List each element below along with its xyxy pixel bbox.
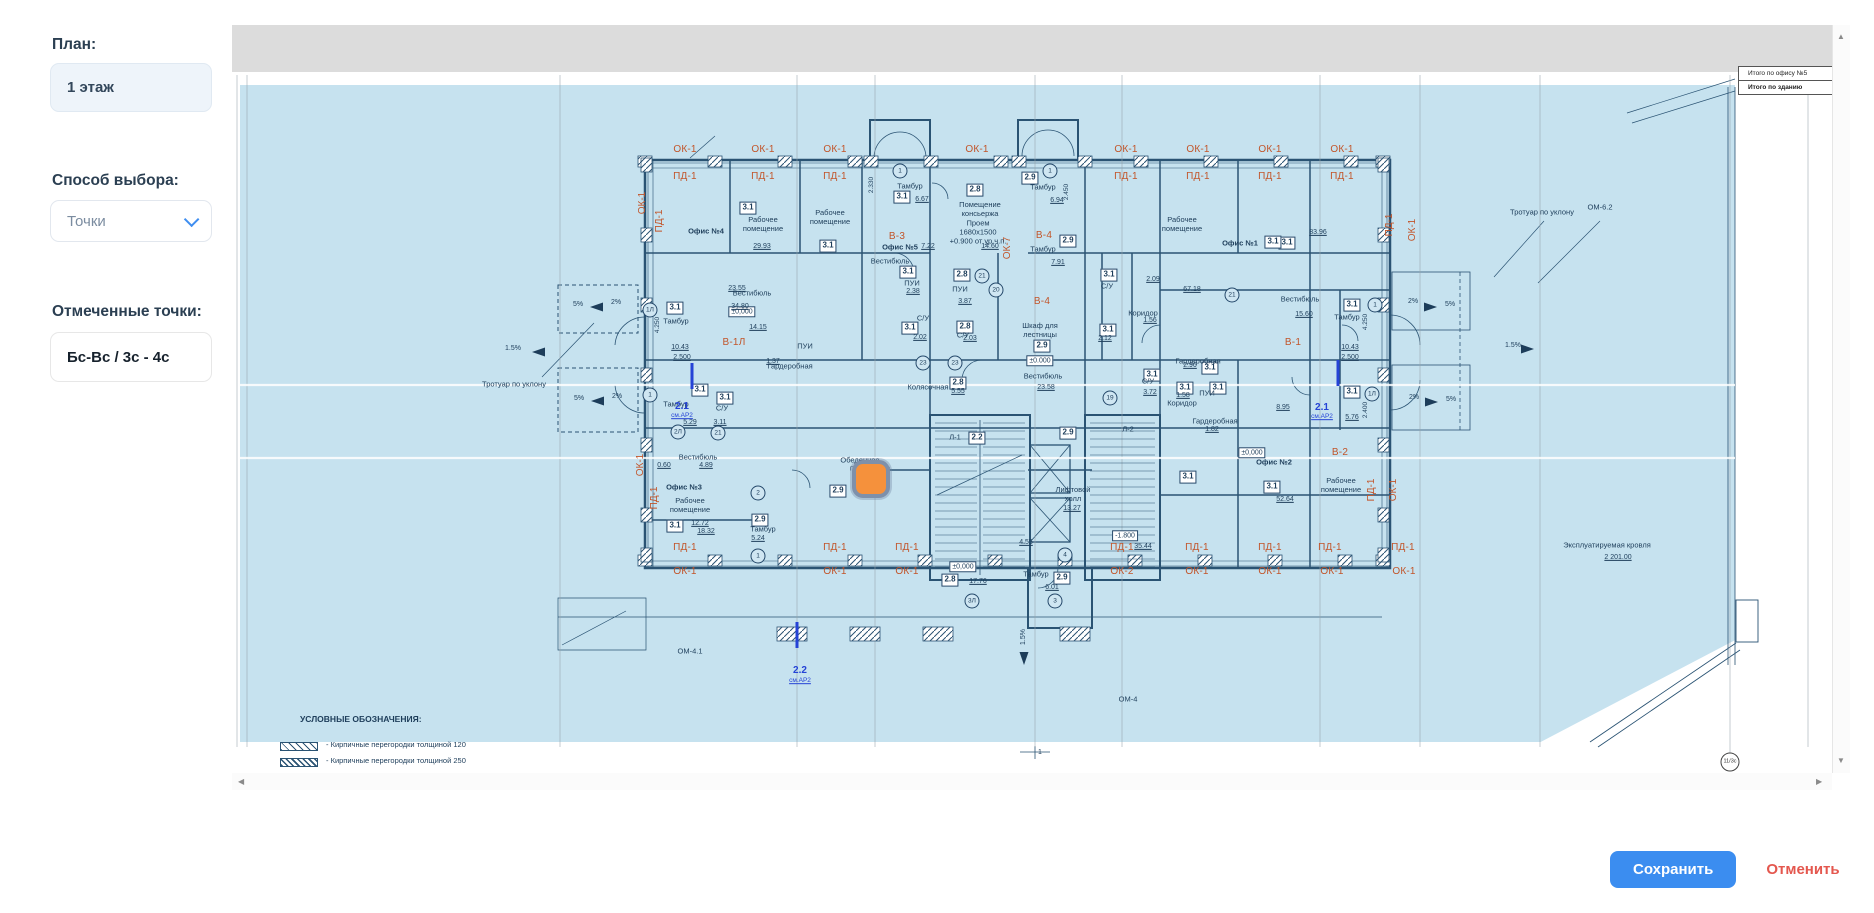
plan-label: 23	[948, 356, 963, 371]
plan-label: 3.1	[901, 322, 918, 335]
plan-label: 1.5%	[1020, 629, 1028, 645]
plan-label: 3.1	[1100, 269, 1117, 282]
blue-tick-mark	[691, 363, 694, 389]
plan-label: 23	[916, 356, 931, 371]
plan-label: 10.43	[671, 344, 689, 352]
plan-label: 13.27	[1063, 505, 1081, 513]
plan-label: В-1Л	[723, 337, 746, 349]
plan-label: ±0,000	[1238, 447, 1265, 458]
plan-label: см.АР2	[789, 677, 811, 685]
plan-label: Помещение консьержа	[959, 201, 1001, 219]
plan-label: 7.91	[1051, 259, 1065, 267]
plan-label: 6.67	[915, 196, 929, 204]
vertical-scrollbar[interactable]: ▲ ▼	[1832, 25, 1850, 773]
plan-label: Колясочная	[908, 384, 949, 393]
plan-label: 83.96	[1309, 229, 1327, 237]
plan-label: Офис №2	[1256, 459, 1292, 468]
plan-label: 29.93	[753, 243, 771, 251]
legend-item: - Кирпичные перегородки толщиной 250	[326, 756, 466, 765]
plan-label: 3Л	[965, 594, 980, 609]
plan-label: ПУИ	[904, 280, 920, 289]
plan-label: 2.96	[1183, 362, 1197, 370]
plan-label: Тротуар по уклону	[482, 381, 546, 390]
action-bar: Сохранить Отменить	[1610, 851, 1840, 888]
plan-label: 3.1	[1176, 382, 1193, 395]
plan-label: 5%	[1445, 301, 1455, 309]
plan-label: 2%	[1409, 394, 1419, 402]
plan-label: Шкаф для лестницы	[1022, 322, 1058, 340]
plan-label: 2.9	[751, 514, 768, 527]
legend-hatch-swatch-250	[280, 758, 318, 767]
plan-label: 2.8	[966, 184, 983, 197]
scroll-up-icon[interactable]: ▲	[1837, 33, 1845, 41]
plan-select-value: 1 этаж	[67, 79, 114, 96]
plan-label: 3.1	[666, 302, 683, 315]
plan-label: ОМ-6.2	[1587, 204, 1612, 213]
plan-label: 3.1	[1264, 236, 1281, 249]
plan-label: -1.800	[1112, 530, 1138, 541]
plan-label: ПД-1	[1186, 171, 1210, 183]
plan-label: ПД-1	[751, 171, 775, 183]
plan-label: 2Л	[671, 425, 686, 440]
scroll-right-icon[interactable]: ▶	[1816, 778, 1822, 786]
plan-label: ПД-1	[673, 542, 697, 554]
plan-label: Тамбур	[897, 183, 922, 192]
plan-label: 3.1	[899, 266, 916, 279]
plan-label: ОК-1	[1330, 144, 1353, 156]
plan-label: 12.72	[691, 520, 709, 528]
plan-label: 1.82	[1205, 426, 1219, 434]
plan-label: 6.94	[1050, 197, 1064, 205]
plan-label: 5.29	[683, 419, 697, 427]
plan-label: ПД-1	[649, 487, 661, 510]
plan-label: 5%	[1446, 396, 1456, 404]
plan-label: 18.32	[697, 528, 715, 536]
plan-label: С/У	[917, 315, 929, 324]
plan-label: 19	[1103, 391, 1118, 406]
plan-label: 3.1	[893, 191, 910, 204]
plan-label: Вестибюль	[871, 258, 910, 267]
plan-label: 5.24	[751, 535, 765, 543]
plan-label: Лифтовой холл	[1056, 486, 1091, 504]
plan-label: Тротуар по уклону	[1510, 209, 1574, 218]
plan-label: ОК-7	[1002, 237, 1014, 260]
plan-label: 5.76	[1345, 414, 1359, 422]
plan-label: ПД-1	[1391, 542, 1415, 554]
plan-label: 2.12	[1098, 335, 1112, 343]
plan-label: 34.80	[731, 303, 749, 311]
plan-label: В-3	[889, 231, 905, 243]
plan-label: 52.64	[1276, 496, 1294, 504]
plan-label: Гардеробная	[1192, 418, 1237, 427]
plan-label: ОК-1	[1185, 566, 1208, 578]
plan-label: 3.72	[1143, 389, 1157, 397]
plan-label: 2.1	[675, 401, 689, 413]
plan-label: С/У	[716, 405, 728, 414]
plan-label: 5%	[573, 301, 583, 309]
plan-label: 21	[711, 426, 726, 441]
plan-label: Рабочее помещение	[743, 216, 783, 234]
plan-select[interactable]: 1 этаж	[50, 63, 212, 112]
plan-label: Вестибюль	[733, 290, 772, 299]
plan-label: План:	[52, 36, 96, 54]
plan-label: 4.55	[1019, 539, 1033, 547]
plan-label: 2.9	[829, 485, 846, 498]
plan-label: ПД-1	[1258, 171, 1282, 183]
plan-label: 5.55	[951, 388, 965, 396]
page: План: 1 этаж Способ выбора: Точки Отмече…	[0, 0, 1874, 913]
plan-label: см.АР2	[671, 412, 693, 420]
legend-title: УСЛОВНЫЕ ОБОЗНАЧЕНИЯ:	[300, 714, 422, 724]
plan-label: 0.60	[657, 462, 671, 470]
plan-label: Офис №3	[666, 484, 702, 493]
plan-label: 23.55	[728, 285, 746, 293]
cancel-button[interactable]: Отменить	[1766, 861, 1839, 878]
plan-label: ПУИ	[952, 286, 968, 295]
plan-label: 3.87	[958, 298, 972, 306]
plan-label: ПД-1	[1330, 171, 1354, 183]
plan-label: ±0.000	[1026, 355, 1053, 366]
plan-label: 10.43	[1341, 344, 1359, 352]
plan-label: Эксплуатируемая кровля	[1563, 542, 1651, 551]
plan-label: Тамбур	[663, 318, 688, 327]
plan-label: 3.1	[691, 384, 708, 397]
floor-plan-viewer[interactable]: ОК-1ОК-1ОК-1ОК-1ОК-1ОК-1ОК-1ОК-1ПД-1ПД-1…	[232, 25, 1849, 790]
method-select[interactable]: Точки	[50, 200, 212, 242]
plan-label: 21	[1225, 288, 1240, 303]
plan-label: 3.1	[1343, 299, 1360, 312]
plan-label: 1.5%	[1505, 342, 1521, 350]
plan-label: Рабочее помещение	[670, 497, 710, 515]
plan-label: 2.8	[941, 574, 958, 587]
plan-label: 21	[975, 269, 990, 284]
save-button[interactable]: Сохранить	[1610, 851, 1736, 888]
plan-label: 14.60	[981, 243, 999, 251]
plan-label: ПД-1	[1318, 542, 1342, 554]
plan-label: 4.89	[699, 462, 713, 470]
plan-label: ОК-1	[895, 566, 918, 578]
plan-label: ПД-1	[823, 542, 847, 554]
plan-label: 1	[1368, 298, 1383, 313]
plan-label: 2.03	[963, 335, 977, 343]
plan-label: Офис №4	[688, 228, 724, 237]
plan-label: Тамбур	[1030, 184, 1055, 193]
plan-label: 11/3с	[1721, 753, 1740, 772]
plan-label: ПД-1	[673, 171, 697, 183]
marked-points-value: Бс-Вс / 3с - 4с	[67, 349, 170, 366]
plan-label: Коридор	[1128, 310, 1158, 319]
scroll-left-icon[interactable]: ◀	[238, 778, 244, 786]
plan-label: ОМ-4	[1119, 696, 1138, 705]
plan-label: Рабочее помещение	[810, 209, 850, 227]
plan-label: 3.1	[739, 202, 756, 215]
plan-label: 6.01	[1045, 584, 1059, 592]
blue-tick-mark	[1337, 360, 1340, 386]
plan-label: ОК-1	[1388, 479, 1400, 502]
plan-label: С/У	[1142, 378, 1154, 387]
plan-label: Вестибюль	[1281, 296, 1320, 305]
chevron-down-icon	[184, 211, 200, 227]
blue-tick-mark	[796, 622, 799, 648]
plan-label: ПУИ	[1199, 390, 1215, 399]
plan-label: 3.1	[1209, 382, 1226, 395]
plan-label: ОК-1	[1258, 144, 1281, 156]
plan-label: ПД-1	[654, 210, 666, 233]
plan-label: 2.8	[953, 269, 970, 282]
plan-label: ОМ-4.1	[677, 648, 702, 657]
plan-label: Тамбур	[750, 526, 775, 535]
plan-label: ОК-1	[637, 192, 649, 215]
plan-label: 3.1	[1278, 237, 1295, 250]
plan-label: ПД-1	[1114, 171, 1138, 183]
plan-label: ОК-1	[1320, 566, 1343, 578]
plan-label: 2%	[611, 299, 621, 307]
plan-label: Вестибюль	[1024, 373, 1063, 382]
plan-label: 1	[1043, 164, 1058, 179]
plan-label: Вестибюль	[679, 454, 718, 463]
plan-label: 2.2	[968, 432, 985, 445]
plan-label: В-1	[1285, 337, 1301, 349]
plan-label: Гардеробная	[767, 363, 812, 372]
plan-label: 4.250	[654, 317, 662, 333]
points-label: Отмеченные точки:	[52, 303, 202, 321]
plan-label: 3.1	[716, 392, 733, 405]
plan-label: 17.76	[969, 578, 987, 586]
plan-label: 3	[1048, 594, 1063, 609]
plan-label: Гардеробная	[1175, 358, 1220, 367]
plan-label: 1Л	[643, 303, 658, 318]
plan-label: Тамбур	[1023, 571, 1048, 580]
plan-label: 1.37	[766, 358, 780, 366]
plan-label: ПД-1	[1185, 542, 1209, 554]
horizontal-scrollbar[interactable]: ◀ ▶	[232, 773, 1832, 790]
plan-label: ОК-1	[1407, 219, 1419, 242]
plan-label: Л-2	[1122, 426, 1134, 435]
plan-label: Коридор	[1167, 400, 1197, 409]
plan-label: 2.450	[1063, 184, 1071, 200]
plan-label: ПД-1	[1258, 542, 1282, 554]
plan-label: 2.38	[906, 288, 920, 296]
plan-label: 2.500	[1341, 354, 1359, 362]
plan-label: 2 201.00	[1604, 554, 1631, 562]
plan-label: Рабочее помещение	[1162, 216, 1202, 234]
plan-label: Тамбур	[1030, 246, 1055, 255]
plan-label: ПД-1	[1384, 214, 1396, 237]
plan-label: ОК-1	[965, 144, 988, 156]
plan-label: 3.1	[819, 240, 836, 253]
plan-label: см.АР2	[1311, 413, 1333, 421]
plan-label: 8.95	[1276, 404, 1290, 412]
plan-label: ±0,000	[728, 306, 755, 317]
legend-item: - Кирпичные перегородки толщиной 120	[326, 740, 466, 749]
plan-label: 2%	[612, 393, 622, 401]
plan-label: 2.500	[673, 354, 691, 362]
plan-label: 2.400	[1362, 402, 1370, 418]
plan-label: 2.9	[1059, 235, 1076, 248]
plan-label: ПД-1	[895, 542, 919, 554]
plan-label: С/У	[1101, 283, 1113, 292]
plan-label: 3.1	[1201, 362, 1218, 375]
plan-label: 1	[643, 388, 658, 403]
plan-label: 20	[989, 283, 1004, 298]
plan-label: 1.56	[1143, 317, 1157, 325]
plan-label: 15.60	[1295, 311, 1313, 319]
plan-label: 35.44	[1134, 543, 1152, 551]
plan-label: Офис №5	[882, 244, 918, 253]
plan-label: 1.5%	[505, 345, 521, 353]
plan-label: 2.09	[1146, 276, 1160, 284]
plan-label: 1	[751, 549, 766, 564]
plan-label: 2.2	[793, 665, 807, 677]
plan-label: ОК-1	[751, 144, 774, 156]
legend-hatch-swatch-120	[280, 742, 318, 751]
plan-label: ПД-1	[1366, 479, 1378, 502]
method-select-value: Точки	[67, 213, 106, 230]
plan-label: 3.1	[1179, 471, 1196, 484]
plan-label: ОК-1	[673, 566, 696, 578]
plan-label: 4.250	[1362, 314, 1370, 330]
plan-label: ПУИ	[797, 343, 813, 352]
selected-point-marker[interactable]	[852, 460, 890, 498]
plan-label: 4	[1058, 548, 1073, 563]
plan-label: 2.9	[1059, 427, 1076, 440]
plan-label: В-2	[1332, 447, 1348, 459]
plan-label: 67.18	[1183, 286, 1201, 294]
plan-label: ПД-1	[1110, 542, 1134, 554]
plan-label: С/У	[957, 332, 969, 341]
plan-label: 23.58	[1037, 384, 1055, 392]
plan-label: 3.1	[1343, 386, 1360, 399]
plan-label: ОК-2	[1110, 566, 1133, 578]
plan-label: ОК-1	[1258, 566, 1281, 578]
plan-label: 14.15	[749, 324, 767, 332]
plan-label: 5%	[574, 395, 584, 403]
plan-label: ОК-1	[1392, 566, 1415, 578]
plan-label: В-4	[1034, 296, 1050, 308]
plan-label: 2.8	[949, 377, 966, 390]
plan-label: ОК-1	[823, 566, 846, 578]
plan-label: ОК-1	[635, 454, 647, 477]
plan-labels: ОК-1ОК-1ОК-1ОК-1ОК-1ОК-1ОК-1ОК-1ПД-1ПД-1…	[232, 25, 1832, 775]
plan-label: 7.22	[921, 243, 935, 251]
plan-label: 3.1	[1263, 481, 1280, 494]
plan-label: ПД-1	[823, 171, 847, 183]
plan-label: 2.9	[1053, 572, 1070, 585]
plan-label: 1	[893, 164, 908, 179]
plan-label: 2.330	[868, 177, 876, 193]
plan-label: Тамбур	[663, 401, 688, 410]
plan-label: Проем 1680х1500 +0.900 от ур.ч.п.	[950, 220, 1007, 247]
plan-label: 2.8	[956, 321, 973, 334]
plan-label: ОК-1	[673, 144, 696, 156]
plan-label: Рабочее помещение	[1321, 477, 1361, 495]
marked-points-box[interactable]: Бс-Вс / 3с - 4с	[50, 332, 212, 382]
plan-label: 2.9	[1021, 172, 1038, 185]
plan-label: 2.1	[1315, 402, 1329, 414]
plan-label: 2.9	[1033, 340, 1050, 353]
plan-label: 2.02	[913, 334, 927, 342]
plan-label: ОК-1	[1186, 144, 1209, 156]
plan-label: 2%	[1408, 298, 1418, 306]
scroll-down-icon[interactable]: ▼	[1837, 757, 1845, 765]
method-label: Способ выбора:	[52, 172, 179, 190]
plan-label: 2	[751, 486, 766, 501]
plan-label: 1	[1038, 749, 1042, 757]
plan-label: Офис №1	[1222, 240, 1258, 249]
plan-label: 3.1	[1143, 369, 1160, 382]
plan-label: 3.1	[666, 520, 683, 533]
plan-label: 1.58	[1176, 392, 1190, 400]
plan-label: В-4	[1036, 230, 1052, 242]
plan-label: ОК-1	[1114, 144, 1137, 156]
plan-label: ОК-1	[823, 144, 846, 156]
plan-label: 3.11	[713, 419, 726, 427]
plan-label: Тамбур	[1334, 314, 1359, 323]
plan-label: Л-1	[949, 434, 961, 443]
plan-label: ±0,000	[949, 561, 976, 572]
plan-label: 3.1	[1099, 324, 1116, 337]
plan-label: 1Л	[1365, 387, 1380, 402]
